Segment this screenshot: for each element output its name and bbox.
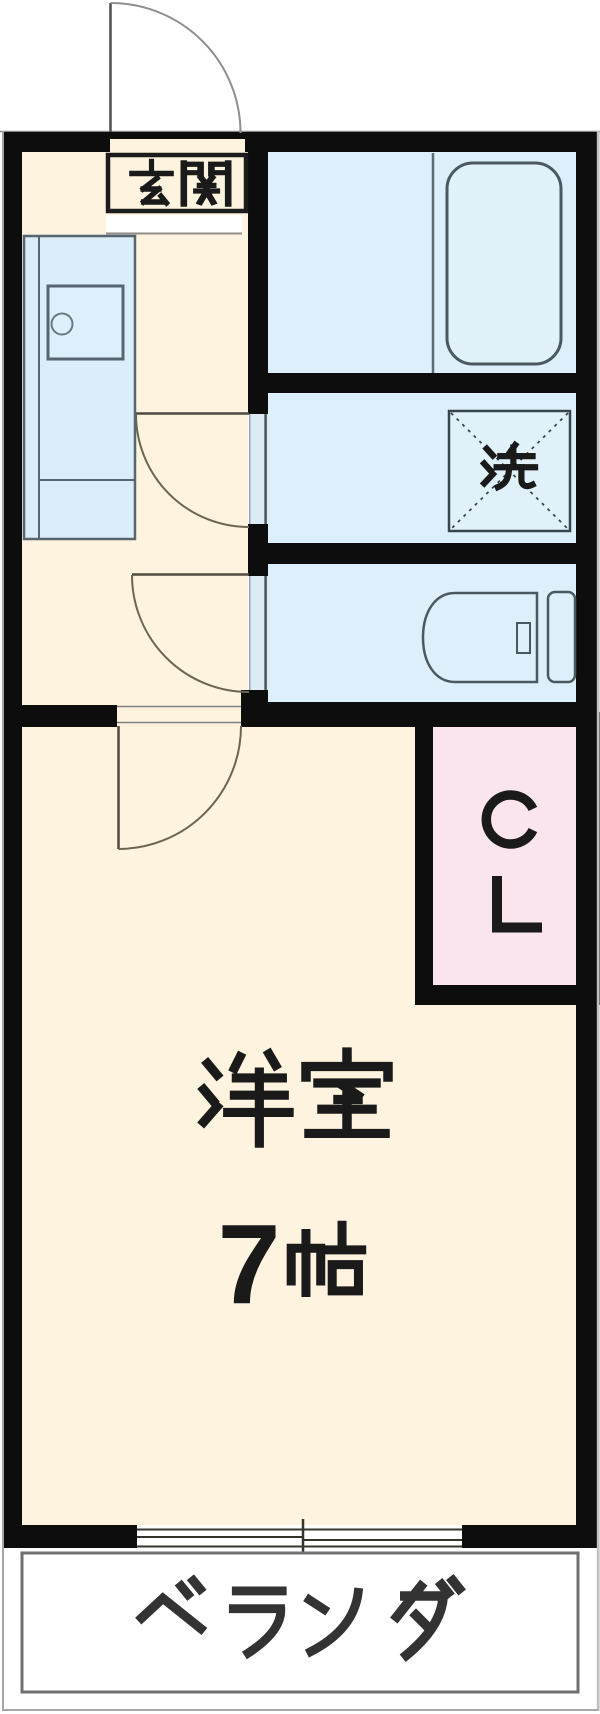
svg-text:7: 7: [218, 1201, 281, 1327]
